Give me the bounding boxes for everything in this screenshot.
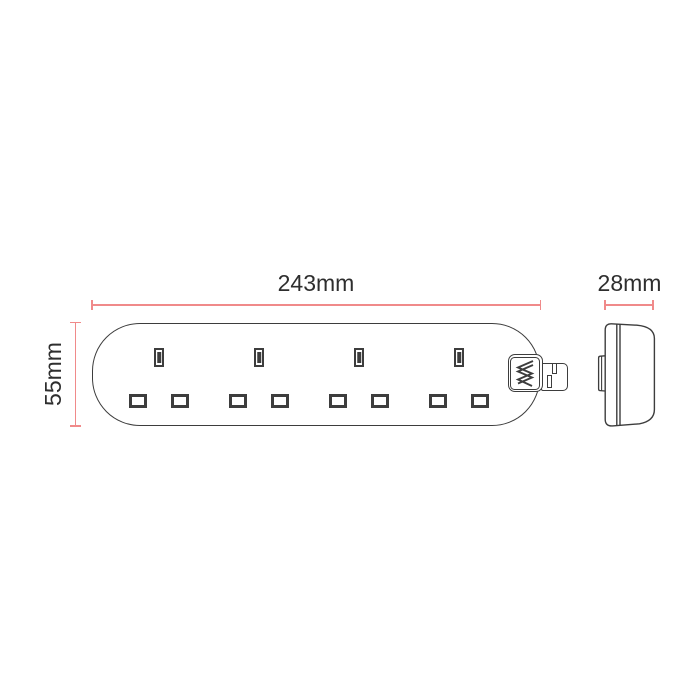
neutral-pin-slot (271, 394, 289, 408)
earth-pin-slot (154, 348, 164, 367)
strain-relief-button (508, 354, 543, 392)
earth-pin-shutter (357, 352, 361, 363)
clip-latch-mark-bottom (547, 375, 552, 388)
neutral-pin-slot (171, 394, 189, 408)
depth-dimension-tick-left (604, 300, 606, 311)
socket-1 (128, 347, 190, 408)
earth-pin-slot (354, 348, 364, 367)
neutral-pin-slot (371, 394, 389, 408)
depth-dimension-label: 28mm (592, 271, 667, 295)
socket-3 (328, 347, 390, 408)
width-dimension-tick-right (540, 300, 542, 311)
depth-dimension-tick-right (652, 300, 654, 311)
dimension-diagram: 243mm 28mm 55mm (0, 0, 700, 700)
width-dimension-tick-left (91, 300, 93, 311)
earth-pin-shutter (457, 352, 461, 363)
live-pin-slot (329, 394, 347, 408)
zigzag-icon (509, 355, 544, 393)
neutral-pin-slot (471, 394, 489, 408)
socket-2 (228, 347, 290, 408)
earth-pin-shutter (157, 352, 161, 363)
height-dimension-label: 55mm (41, 334, 65, 414)
live-pin-slot (129, 394, 147, 408)
socket-4 (428, 347, 490, 408)
height-dimension-tick-bottom (70, 425, 81, 427)
earth-pin-slot (454, 348, 464, 367)
live-pin-slot (229, 394, 247, 408)
live-pin-slot (429, 394, 447, 408)
width-dimension-label: 243mm (92, 271, 540, 295)
cable-clip-tab (541, 363, 568, 391)
power-strip-side-view (593, 317, 663, 433)
side-view-outline (605, 324, 654, 426)
depth-dimension-line (605, 304, 653, 306)
earth-pin-shutter (257, 352, 261, 363)
height-dimension-line (75, 323, 77, 427)
earth-pin-slot (254, 348, 264, 367)
clip-latch-mark-top (552, 363, 557, 374)
width-dimension-line (92, 304, 541, 306)
height-dimension-tick-top (70, 322, 81, 324)
